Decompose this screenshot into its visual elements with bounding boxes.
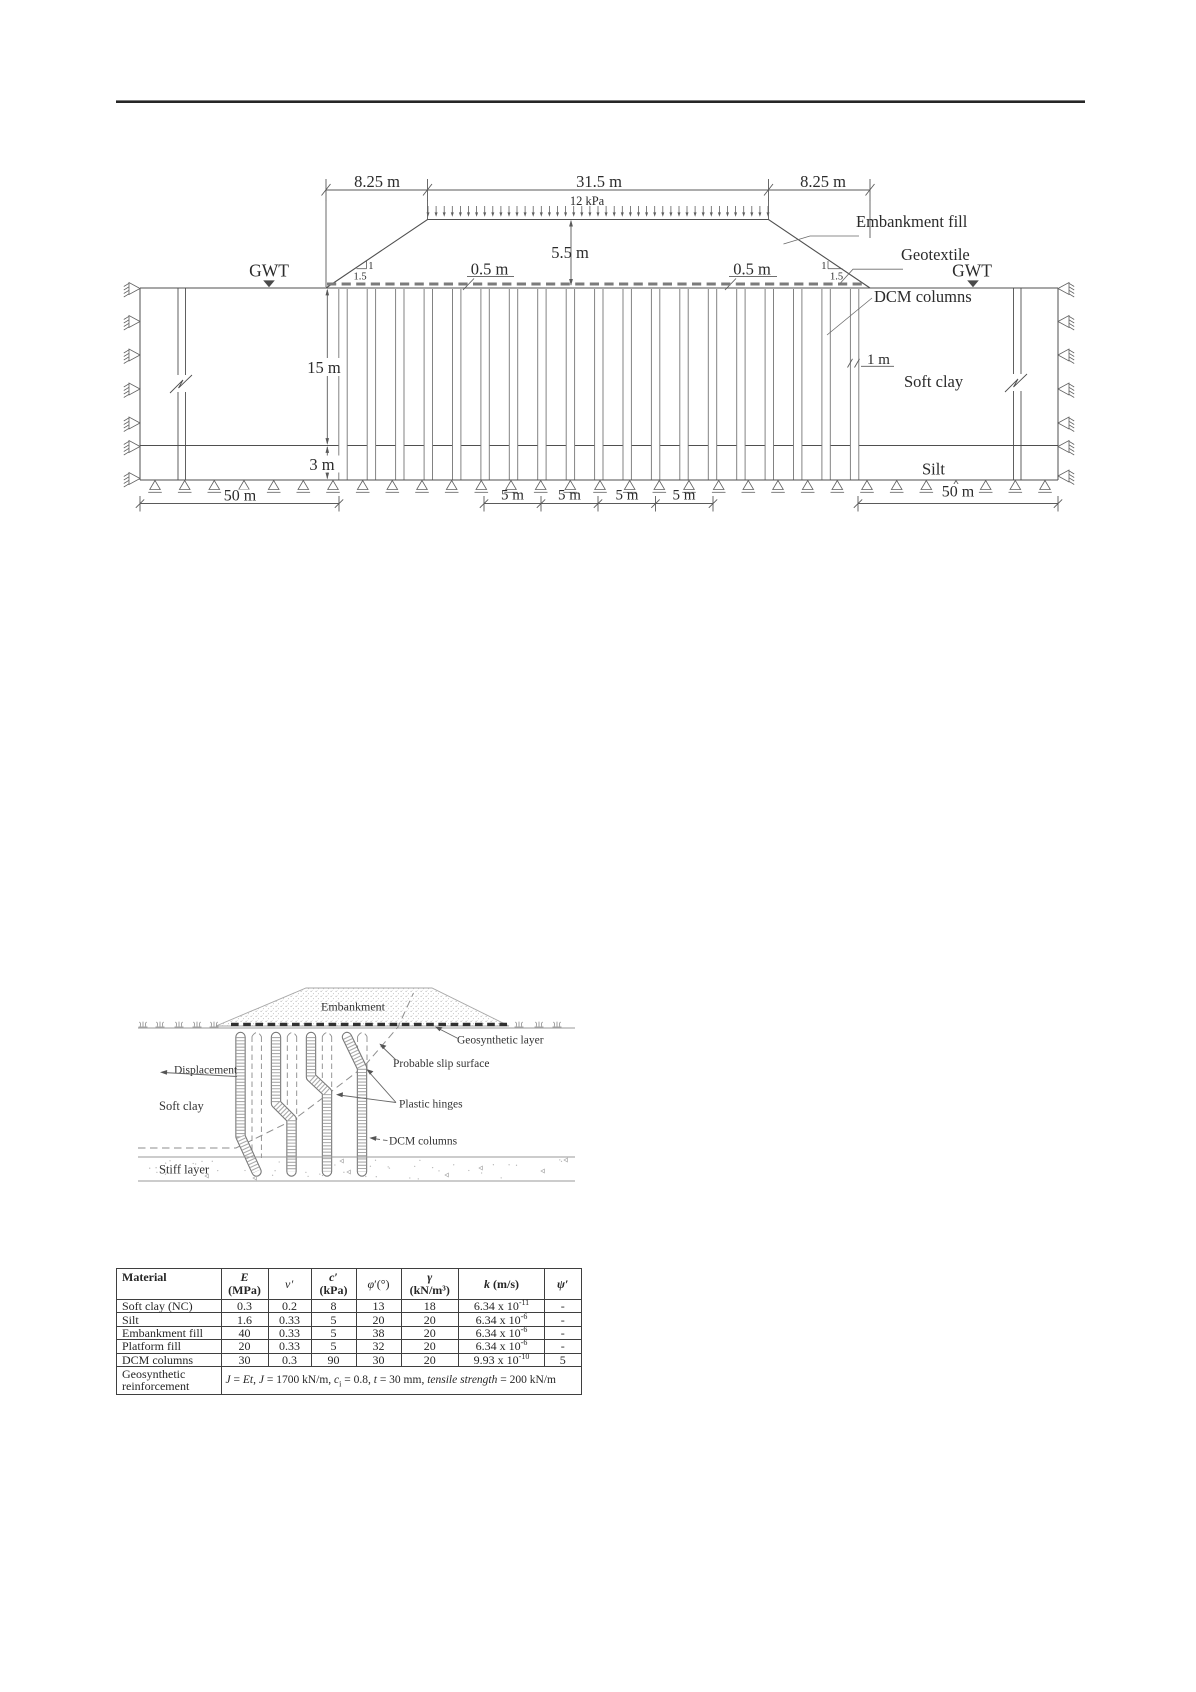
svg-text:5 m: 5 m xyxy=(558,488,581,504)
svg-text:8.25 m: 8.25 m xyxy=(800,172,846,191)
svg-text:1: 1 xyxy=(821,261,826,272)
svg-text:Embankment: Embankment xyxy=(321,1000,386,1014)
svg-text:5 m: 5 m xyxy=(616,488,639,504)
svg-text:Geosynthetic layer: Geosynthetic layer xyxy=(457,1035,544,1047)
svg-text:DCM columns: DCM columns xyxy=(389,1136,458,1148)
svg-text:5 m: 5 m xyxy=(673,488,696,504)
svg-text:15 m: 15 m xyxy=(307,358,341,377)
svg-text:5 m: 5 m xyxy=(501,488,524,504)
svg-text:Plastic hinges: Plastic hinges xyxy=(399,1099,463,1111)
svg-text:5.5 m: 5.5 m xyxy=(551,243,589,262)
svg-text:1 m: 1 m xyxy=(867,352,890,368)
svg-text:0.5 m: 0.5 m xyxy=(733,260,771,279)
svg-text:50 m: 50 m xyxy=(942,484,975,501)
svg-text:3 m: 3 m xyxy=(309,455,334,474)
svg-text:0.5 m: 0.5 m xyxy=(471,260,509,279)
svg-text:Silt: Silt xyxy=(922,460,945,479)
svg-text:12 kPa: 12 kPa xyxy=(570,194,605,208)
svg-text:Geotextile: Geotextile xyxy=(901,245,970,264)
svg-text:50 m: 50 m xyxy=(224,488,257,505)
svg-text:Soft clay: Soft clay xyxy=(904,372,964,391)
svg-text:8.25 m: 8.25 m xyxy=(354,172,400,191)
svg-text:Embankment fill: Embankment fill xyxy=(856,212,968,231)
svg-text:1.5: 1.5 xyxy=(830,272,843,283)
svg-text:GWT: GWT xyxy=(249,261,289,281)
svg-text:Probable slip surface: Probable slip surface xyxy=(393,1058,489,1070)
svg-text:1: 1 xyxy=(368,261,373,272)
svg-text:31.5 m: 31.5 m xyxy=(576,172,622,191)
svg-text:Soft clay: Soft clay xyxy=(159,1099,205,1113)
svg-text:DCM columns: DCM columns xyxy=(874,287,972,306)
svg-text:1.5: 1.5 xyxy=(353,272,366,283)
svg-text:Stiff layer: Stiff layer xyxy=(159,1163,210,1177)
